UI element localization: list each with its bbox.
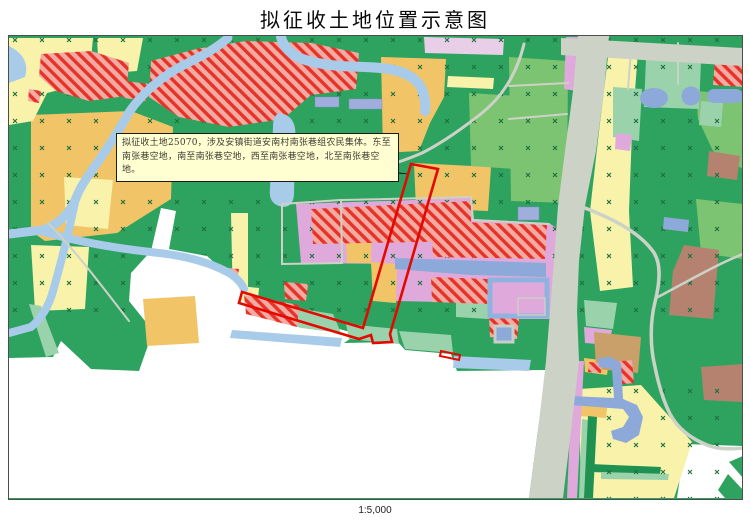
page: 拟征收土地位置示意图 — [0, 0, 750, 530]
annotation-text: 拟征收土地25070，涉及安镇街道安南村南张巷组农民集体。东至南张巷空地，南至南… — [122, 138, 391, 175]
map-title: 拟征收土地位置示意图 — [0, 4, 750, 33]
scale-label: 1:5,000 — [0, 505, 750, 516]
land-use-map: 拟征收土地25070，涉及安镇街道安南村南张巷组农民集体。东至南张巷空地，南至南… — [8, 35, 743, 500]
map-canvas — [9, 36, 742, 499]
annotation-callout: 拟征收土地25070，涉及安镇街道安南村南张巷组农民集体。东至南张巷空地，南至南… — [116, 133, 399, 182]
